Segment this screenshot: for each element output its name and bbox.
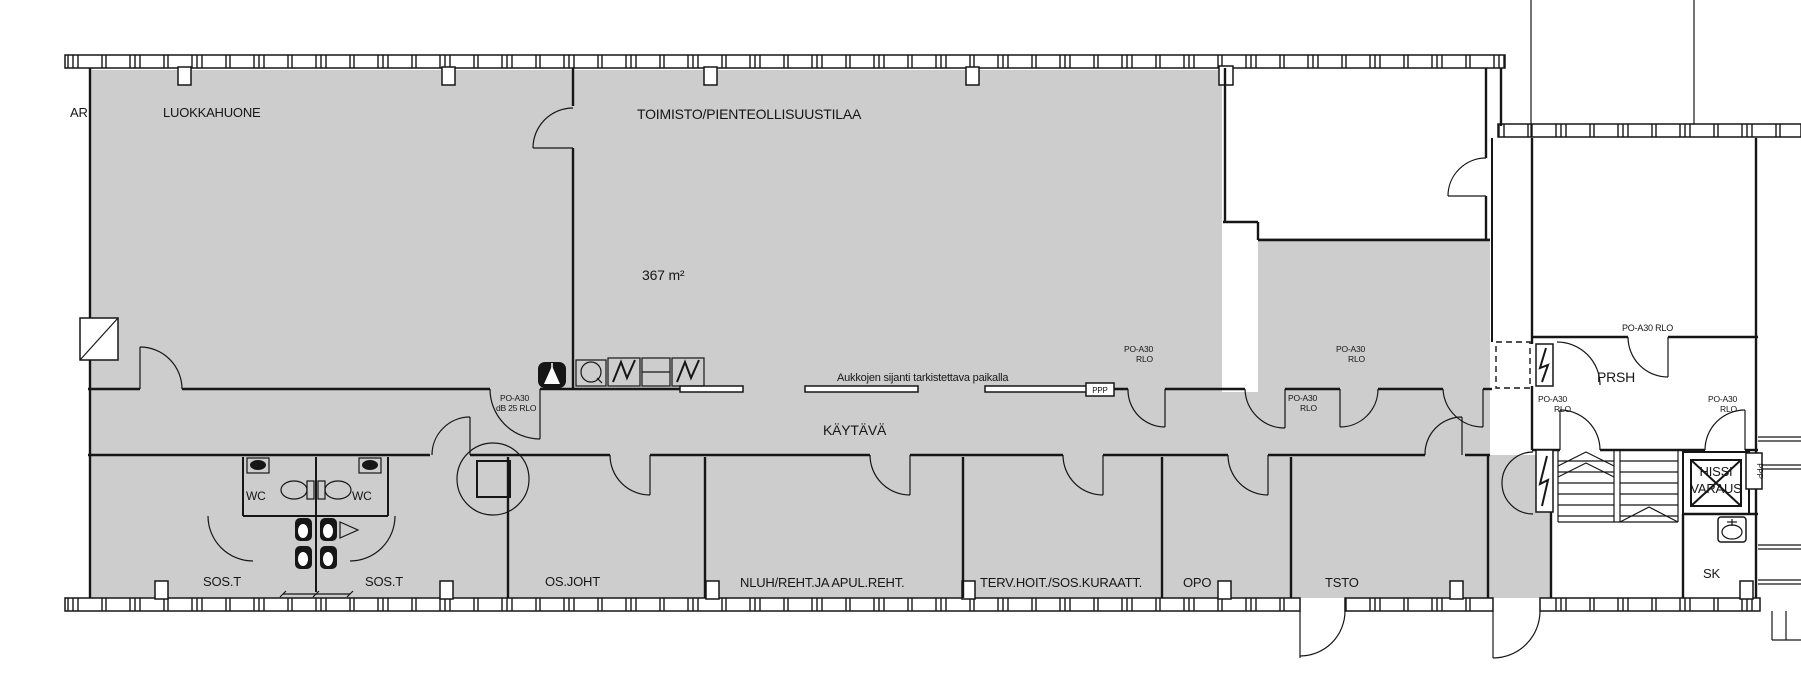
- door-stair-left: [1560, 410, 1600, 450]
- door-code: PO-A30: [1124, 344, 1154, 354]
- exterior-door: [1300, 611, 1345, 658]
- label-ppp-right: PPP: [1755, 463, 1764, 478]
- staircase: [1558, 450, 1678, 522]
- door-code: RLO: [1348, 354, 1365, 364]
- exterior-door: [1493, 611, 1540, 658]
- label-luokkahuone: LUOKKAHUONE: [163, 105, 261, 120]
- door-code: RLO: [1554, 404, 1571, 414]
- wall-opening-bars: [680, 386, 1095, 392]
- door-code: RLO: [1720, 404, 1737, 414]
- door-code: RLO: [1136, 354, 1153, 364]
- door-stair-right: [1705, 410, 1745, 450]
- label-toimisto-area: 367 m²: [642, 267, 685, 283]
- label-aukkojen-note: Aukkojen sijanti tarkistettava paikalla: [837, 372, 1009, 384]
- door-code: dB 25 RLO: [496, 403, 537, 413]
- door-code-prsh: PO-A30 RLO: [1622, 323, 1673, 333]
- label-kaytava: KÄYTÄVÄ: [823, 422, 887, 438]
- label-wc-2: WC: [352, 489, 372, 503]
- label-toimisto: TOIMISTO/PIENTEOLLISUUSTILAA: [637, 106, 862, 122]
- label-ppp: PPP: [1092, 386, 1107, 395]
- door-code: PO-A30: [1288, 393, 1318, 403]
- sk-sink-icon: [1718, 517, 1746, 542]
- dashed-opening: [1496, 342, 1530, 388]
- door-code: PO-A30: [1538, 394, 1568, 404]
- lightning-door-icon: [1536, 344, 1553, 386]
- label-osjoht: OS.JOHT: [545, 574, 600, 589]
- floor-plan-canvas: AR LUOKKAHUONE TOIMISTO/PIENTEOLLISUUSTI…: [0, 0, 1801, 679]
- label-hissi-1: HISSI: [1700, 464, 1733, 479]
- door-white-room: [1448, 158, 1486, 196]
- label-wc-1: WC: [246, 489, 266, 503]
- label-sk: SK: [1703, 566, 1720, 581]
- label-hissi-2: VARAUS: [1690, 481, 1742, 496]
- label-ar: AR: [70, 105, 88, 120]
- label-sost-2: SOS.T: [365, 574, 403, 589]
- door-code: PO-A30: [1708, 394, 1738, 404]
- door-code: PO-A30: [1336, 344, 1366, 354]
- label-prsh: PRSH: [1597, 369, 1635, 385]
- lightning-door-icon: [1536, 450, 1553, 512]
- label-opo: OPO: [1183, 575, 1211, 590]
- floor-plan-drawing: AR LUOKKAHUONE TOIMISTO/PIENTEOLLISUUSTI…: [0, 0, 1801, 679]
- label-sost-1: SOS.T: [203, 574, 241, 589]
- door-code: RLO: [1300, 403, 1317, 413]
- label-terv: TERV.HOIT./SOS.KURAATT.: [980, 575, 1142, 590]
- label-tsto: TSTO: [1325, 575, 1359, 590]
- door-code: PO-A30: [500, 393, 530, 403]
- label-nluh: NLUH/REHT.JA APUL.REHT.: [740, 575, 904, 590]
- door-prsh-left: [1557, 342, 1600, 385]
- white-room-walls: [1223, 68, 1490, 240]
